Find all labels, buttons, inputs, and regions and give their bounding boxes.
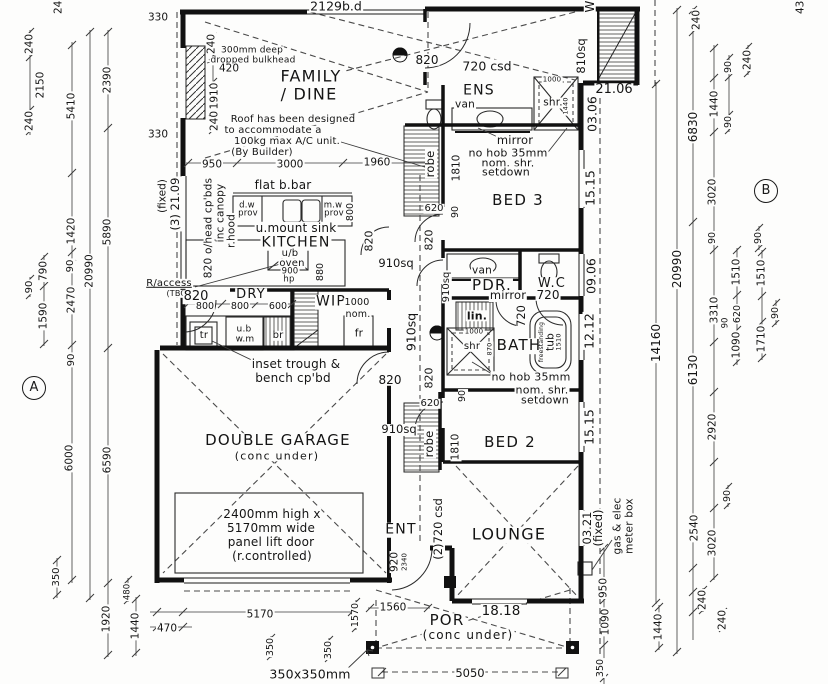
dims-right-label: 240 — [718, 609, 729, 631]
notes-label: 1510 — [556, 332, 563, 351]
notes-label: shr. — [542, 98, 564, 109]
notes-label: 2400mm high x — [222, 508, 321, 520]
notes-label: prov — [237, 210, 259, 219]
notes-label: prov — [323, 210, 345, 219]
rooms-label: DOUBLE GARAGE — [204, 433, 352, 449]
notes-label: setdown — [520, 394, 570, 405]
dims-left-label: 2390 — [103, 66, 114, 95]
rooms-label: / DINE — [280, 87, 339, 104]
dims-left-label: 350 — [52, 566, 62, 587]
glazing-label: (3) 21.09 — [170, 177, 182, 232]
dims-right-label: 14160 — [650, 323, 662, 363]
notes-label: 1000 — [344, 298, 371, 308]
dims-left-label: 6000 — [65, 444, 76, 473]
openings-label: 910sq — [442, 271, 452, 304]
rooms-label: ENS — [462, 84, 496, 99]
rooms-label: DRY — [235, 288, 267, 302]
dims-internal-label: 600 — [268, 302, 288, 312]
dims-left-label: 240 — [54, 0, 65, 15]
notes-label: w.m — [235, 335, 256, 344]
openings-label: 820 — [423, 367, 434, 390]
dims-right-label: 1440 — [710, 90, 721, 119]
notes-label: 350x350mm — [268, 668, 351, 681]
notes-label: to accommodate a — [223, 126, 322, 136]
glazing-label: 15.15 — [584, 169, 597, 207]
dims-right-label: 90 — [724, 60, 734, 74]
dims-bottom-label: 5050 — [454, 668, 485, 680]
dims-internal-label: 880 — [316, 262, 326, 282]
rooms-label: (conc under) — [234, 450, 321, 461]
dims-right-label: 950 — [599, 577, 610, 599]
dims-left-label: 240 — [210, 110, 221, 132]
dims-right-label: 90 — [771, 306, 781, 320]
openings-label: 820 — [423, 229, 434, 252]
notes-label: nom. — [345, 310, 372, 320]
notes-label: robe — [424, 430, 436, 459]
dims-bottom-label: 5170 — [246, 610, 275, 621]
notes-label: R/access — [145, 279, 193, 289]
dims-right-label: 90 — [723, 489, 733, 503]
glazing-label: (fixed) — [593, 508, 605, 547]
openings-label: 910sq — [380, 424, 417, 436]
dims-right-label: 3310 — [710, 296, 721, 325]
sink-bowl-left — [283, 200, 301, 222]
dims-internal-label: 1810 — [452, 154, 463, 183]
dims-left-label: 330 — [147, 13, 169, 24]
top-block-ceiling-cross — [310, 12, 575, 80]
dims-left-label: 240 — [207, 33, 218, 55]
glazing-label: 21.06 — [594, 83, 633, 97]
openings-label: 720 — [536, 289, 561, 301]
openings-label: 910sq — [405, 312, 418, 352]
openings-label: 2129b.d — [309, 0, 363, 13]
garage-panel-door — [184, 578, 350, 583]
dims-right-label: 620 — [733, 304, 743, 324]
notes-label: 820 o/head cp'bds — [204, 177, 215, 279]
post-center-dot — [571, 646, 575, 650]
dims-left-label: 420 — [218, 64, 240, 75]
rooms-label: W — [584, 0, 596, 14]
notes-label: 100kg max A/C unit. — [233, 137, 341, 147]
notes-label: panel lift door — [227, 536, 316, 548]
dims-right-label: 1090 — [601, 608, 612, 637]
notes-label: 1000 — [464, 328, 485, 335]
dims-right-label: 240 — [743, 49, 754, 71]
dims-internal-label: 800 — [230, 302, 250, 312]
post-marker-left — [372, 668, 384, 678]
dims-internal-label: 800 — [195, 302, 215, 312]
dims-bottom-label: 350 — [266, 637, 276, 657]
rooms-label: BATH — [496, 338, 543, 354]
dims-right-label: 240 — [698, 589, 709, 611]
rooms-label: WIP — [315, 295, 347, 310]
dims-right-label: 430 — [796, 0, 807, 15]
notes-label: van — [454, 100, 476, 111]
notes-label: bench cp'bd — [254, 372, 332, 384]
glazing-label: 15.15 — [583, 408, 596, 446]
sink-bowl-right — [302, 200, 320, 222]
openings-label: 720 — [516, 304, 528, 328]
openings-label: 810sq — [576, 37, 588, 74]
entry-post — [444, 576, 456, 588]
bulkhead-pier-hatch — [186, 46, 205, 119]
rooms-label: BED 3 — [491, 193, 545, 209]
dims-right-label: 350 — [596, 658, 606, 678]
openings-label: 820 — [415, 54, 440, 66]
dims-bottom-label: 1560 — [379, 603, 408, 614]
notes-label: br — [272, 331, 285, 341]
glazing-label: 12.12 — [583, 312, 596, 350]
dims-left-label: 6590 — [103, 446, 114, 475]
dims-internal-label: 90 — [451, 205, 461, 219]
dims-left-label: 5410 — [67, 92, 78, 121]
glazing-label: 18.18 — [481, 604, 522, 618]
dims-left-label: 90 — [66, 259, 76, 274]
notes-label: setdown — [481, 166, 531, 177]
dims-right-label: 90 — [708, 231, 718, 245]
dims-internal-label: 1960 — [363, 158, 392, 169]
dims-left-label: 90 — [25, 280, 35, 295]
pdr-door-arc — [417, 260, 443, 286]
rooms-label: (conc under) — [422, 629, 515, 641]
notes-label: robe — [425, 150, 437, 179]
notes-label: u.mount sink — [255, 222, 338, 234]
notes-label: (r.controlled) — [231, 550, 313, 562]
glazing-label: (fixed) — [158, 178, 169, 214]
glazing-label: 09.06 — [585, 257, 598, 295]
dims-left-label: 1920 — [102, 605, 113, 634]
notes-label: Roof has been designed — [230, 115, 357, 125]
openings-label: (2)720 csd — [433, 497, 445, 561]
dims-right-label: 3020 — [708, 529, 719, 558]
openings-label: 620 — [423, 204, 444, 214]
notes-label: mirror — [496, 135, 534, 147]
dims-left-label: 20990 — [85, 253, 96, 288]
dims-left-label: 2150 — [36, 71, 47, 100]
dims-internal-label: 90 — [458, 389, 468, 403]
notes-label: mirror — [489, 290, 527, 302]
dims-right-label: 90 — [722, 317, 731, 330]
dims-right-label: 3020 — [708, 178, 719, 207]
dims-right-label: 1090 — [732, 331, 743, 360]
rooms-label: FAMILY — [280, 69, 343, 86]
floor-plan-page: FAMILY/ DINEKITCHENENSBED 3PDR.W.CBATHDR… — [0, 0, 828, 684]
dims-bottom-label: 470 — [156, 624, 178, 635]
rooms-label: POR — [429, 613, 466, 629]
rooms-label: BED 2 — [483, 435, 537, 451]
dims-internal-label: 950 — [201, 160, 223, 171]
dims-left-label: 480 — [124, 583, 133, 601]
dims-right-label: 240 — [692, 9, 703, 31]
dims-right-label: 6130 — [687, 354, 699, 387]
notes-label: r.hood — [227, 213, 238, 249]
dims-right-label: 2540 — [690, 514, 701, 543]
dims-right-label: 6830 — [687, 111, 699, 144]
notes-label: hp — [282, 276, 295, 285]
dims-left-label: 330 — [147, 130, 169, 141]
notes-label: 300mm deep — [220, 46, 284, 55]
dims-left-label: 1590 — [39, 302, 50, 331]
notes-label: no hob 35mm — [490, 371, 571, 382]
notes-label: shr — [463, 342, 481, 352]
dims-left-label: 790 — [39, 260, 50, 282]
ens-toilet-tank — [426, 100, 442, 109]
notes-label: flat b.bar — [254, 179, 313, 191]
notes-label: (By Builder) — [230, 148, 294, 158]
grid-marker-a: A — [22, 376, 46, 400]
dims-right-label: 1710 — [757, 325, 768, 354]
dims-left-label: 240 — [25, 33, 36, 55]
dims-left-label: 2470 — [67, 286, 78, 315]
notes-label: inset trough & — [251, 358, 342, 370]
rooms-label: ENT — [384, 523, 417, 538]
notes-label: gas & elec — [613, 496, 624, 555]
notes-label: u.b — [236, 325, 253, 334]
rooms-label: LOUNGE — [471, 527, 547, 544]
post-marker-right — [556, 668, 568, 678]
notes-label: meter box — [625, 497, 636, 555]
dims-right-label: 2920 — [708, 413, 719, 442]
dims-internal-label: 800 — [346, 202, 356, 222]
dims-right-label: 20990 — [671, 249, 683, 289]
dims-right-label: 90 — [724, 115, 734, 129]
dims-left-label: 1910 — [210, 82, 221, 111]
grid-marker-b: B — [754, 179, 778, 203]
notes-label: lin. — [466, 310, 488, 321]
dims-right-label: 1440 — [654, 613, 665, 642]
wc-toilet-tank — [539, 254, 559, 263]
openings-label: 720 csd — [461, 60, 512, 73]
notes-label: 1440 — [563, 96, 570, 115]
dims-left-label: 1420 — [67, 217, 78, 246]
dims-right-label: 90 — [754, 231, 764, 245]
openings-label: 820 — [378, 374, 403, 386]
dims-left-label: 90 — [67, 353, 77, 368]
notes-label: 870 — [487, 341, 494, 356]
openings-label: 2340 — [401, 552, 408, 572]
notes-label: 5170mm wide — [226, 522, 316, 534]
glazing-label: 03.06 — [586, 95, 599, 133]
post-center-dot — [371, 646, 375, 650]
dims-internal-label: 1810 — [451, 433, 462, 462]
dims-left-label: 240 — [25, 110, 36, 132]
notes-label: fr — [354, 329, 364, 340]
notes-label: van — [471, 266, 493, 277]
notes-label: tr — [199, 331, 209, 341]
openings-label: 920 — [390, 551, 401, 573]
dims-left-label: 5890 — [103, 218, 114, 247]
dims-right-label: 1510 — [732, 258, 743, 287]
notes-label: 1000 — [542, 76, 563, 83]
dims-bottom-label: 1570 — [351, 602, 361, 628]
dims-bottom-label: 350 — [324, 640, 334, 660]
openings-label: 620 — [419, 399, 440, 409]
smoke-detector-fill — [393, 48, 407, 55]
dims-internal-label: 3000 — [276, 160, 305, 171]
openings-label: 910sq — [377, 258, 414, 270]
dims-right-label: 1510 — [757, 259, 768, 288]
dims-left-label: 1440 — [131, 612, 142, 641]
openings-label: 820 — [363, 230, 374, 253]
